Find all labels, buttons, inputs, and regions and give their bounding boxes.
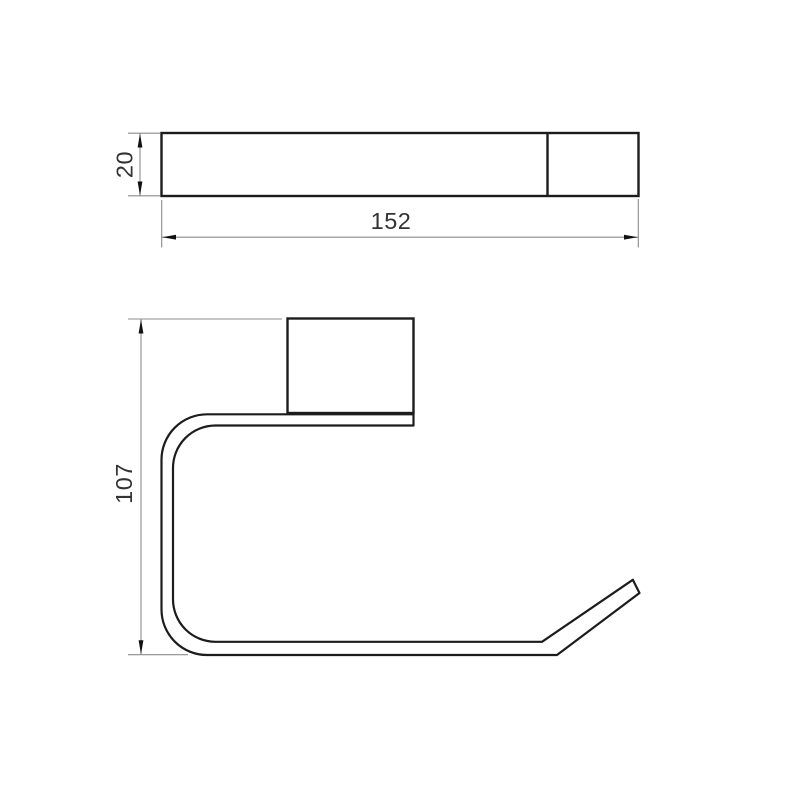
- front-view: 107: [111, 319, 639, 656]
- hook-profile-outline: [161, 414, 639, 655]
- arrowhead-left: [162, 235, 176, 240]
- arrowhead-down: [138, 182, 143, 196]
- dimension-152: 152: [162, 199, 639, 248]
- dim-152-label: 152: [371, 208, 412, 234]
- technical-drawing-page: 20 152: [0, 0, 800, 800]
- mounting-plate-outline: [288, 319, 414, 414]
- dim-20-label: 20: [112, 151, 138, 178]
- arrowhead-down: [139, 640, 144, 654]
- dimension-diagram: 20 152: [0, 0, 800, 800]
- dim-107-label: 107: [111, 463, 137, 504]
- top-view-bar-outline: [162, 133, 639, 196]
- arrowhead-up: [139, 319, 144, 333]
- top-view: 20 152: [112, 133, 639, 248]
- arrowhead-up: [138, 134, 143, 148]
- arrowhead-right: [624, 235, 638, 240]
- dimension-20: 20: [112, 133, 160, 196]
- dimension-107: 107: [111, 319, 282, 655]
